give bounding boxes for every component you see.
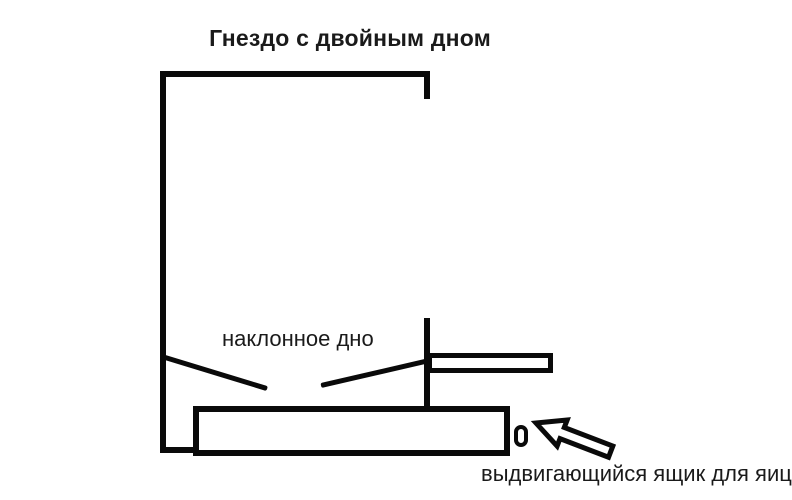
nest-top-edge — [160, 71, 430, 77]
inclined-floor-right — [320, 358, 428, 388]
inclined-bottom-label: наклонное дно — [222, 326, 374, 352]
drawer-knob — [514, 425, 528, 447]
side-shelf — [427, 353, 553, 373]
egg-drawer — [193, 406, 510, 456]
egg-drawer-label: выдвигающийся ящик для яиц — [481, 461, 792, 487]
nest-diagram: Гнездо с двойным дном наклонное дно выдв… — [0, 0, 792, 500]
diagram-title: Гнездо с двойным дном — [209, 25, 491, 52]
nest-right-wall-upper — [424, 71, 430, 99]
inclined-floor-left — [161, 354, 268, 391]
nest-left-wall — [160, 71, 166, 453]
